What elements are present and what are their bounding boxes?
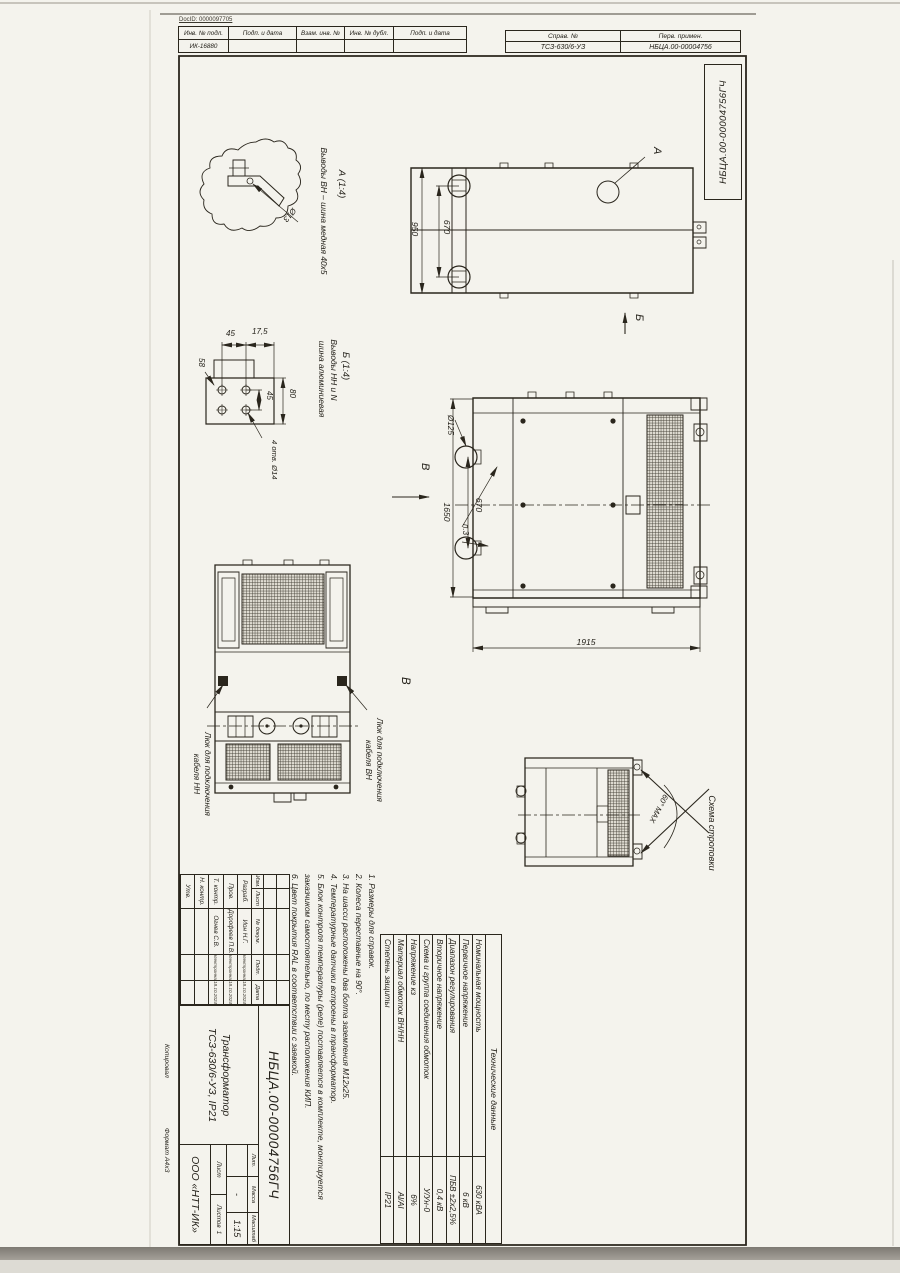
docid-text: DocID: 0000097705: [179, 17, 232, 23]
chg-col-list: Лист: [251, 889, 263, 909]
product-name-line2: ТСЗ-630/6-УЗ, IP21: [205, 1028, 219, 1122]
front-view-dim-1650: 1650: [442, 494, 452, 530]
sig-date: [180, 981, 194, 1005]
product-name: Трансформатор ТСЗ-630/6-УЗ, IP21: [180, 1006, 258, 1145]
tech-row-label: Схема и группа соединения обмоток: [420, 935, 432, 1157]
tech-row-label: Диапазон регулирования: [447, 935, 459, 1157]
chg-col-izm: Изм.: [251, 875, 263, 889]
title-block-signatures: Изм. Лист № докум. Подп. Дата Разраб. Ио…: [180, 875, 289, 1006]
detail-a-title: А (1:4): [336, 160, 347, 208]
sig-role: Разраб.: [237, 875, 251, 909]
tech-row-value: У/Ун-0: [420, 1157, 432, 1243]
technical-data-table: Технические данные Номинальная мощность6…: [380, 934, 502, 1244]
tech-row-label: Первичное напряжение: [460, 935, 472, 1157]
tech-row-value: 6%: [407, 1157, 419, 1243]
mass-value: -: [226, 1177, 247, 1213]
chg-col-data: Дата: [251, 981, 263, 1005]
note-5-cont: заказчиком самостоятельно, по месту расп…: [301, 874, 314, 1166]
tech-row-value: Al/Al: [394, 1157, 406, 1243]
top-view-dim-950: 950: [410, 212, 420, 246]
product-name-line1: Трансформатор: [219, 1034, 233, 1117]
reference-stamp-table: Справ. № Перв. примен. ТСЗ-630/6-УЗ НБЦА…: [505, 30, 741, 53]
hatch-label-vn-line1: Люк для подключения: [374, 693, 385, 827]
sig-signature: Электронная: [223, 955, 237, 981]
sprav-value: ТСЗ-630/6-УЗ: [506, 42, 621, 52]
scale-label: Масштаб: [247, 1213, 258, 1244]
sheets-label: Листов: [215, 1205, 222, 1228]
copied-by-label: Копировал: [163, 1044, 170, 1078]
sig-role: Т. контр.: [208, 875, 222, 909]
hatch-label-nn-line2: кабеля НН: [191, 707, 202, 841]
sig-name: [194, 909, 208, 955]
top-view-dim-670: 670: [442, 214, 452, 240]
corner-designation-text: НБЦА.00-00004756ГЧ: [718, 80, 729, 184]
tech-row-value: IP21: [381, 1157, 393, 1243]
sig-date: 18.10.2024: [237, 981, 251, 1005]
bottom-view-title: В: [399, 677, 411, 685]
front-view-dim-670: 670: [474, 492, 484, 518]
sheets-value: 1: [215, 1231, 222, 1235]
chg-col-podp: Подп.: [251, 955, 263, 981]
sig-role: Пров.: [223, 875, 237, 909]
sling-view-linework: [516, 758, 709, 866]
sheet-label: Лист: [210, 1145, 226, 1195]
note-2: 2. Колеса переставные на 90°.: [352, 874, 365, 1166]
sig-role: Утв.: [180, 875, 194, 909]
hatch-label-vn: Люк для подключения кабеля ВН: [363, 693, 385, 827]
tech-row-label: Номинальная мощность: [473, 935, 485, 1157]
tech-row-value: ПБВ ±2х2,5%: [447, 1157, 459, 1243]
format-label: Формат А4х3: [163, 1128, 170, 1172]
sig-signature: Электронная: [208, 955, 222, 981]
hatch-label-nn: Люк для подключения кабеля НН: [191, 707, 213, 841]
mass-label: Масса: [247, 1177, 258, 1213]
hatch-label-nn-line1: Люк для подключения: [202, 707, 213, 841]
tech-table-title: Технические данные: [485, 935, 501, 1243]
front-view-dim-wheel-dia: Ø125: [446, 408, 455, 442]
note-3: 3. На шасси расположены два болта заземл…: [340, 874, 353, 1166]
sig-date: 18.10.2024: [223, 981, 237, 1005]
scale-value: 1:15: [226, 1213, 247, 1244]
front-view-arrow-label-v: В: [419, 463, 431, 470]
top-view-callout-a: А: [651, 147, 663, 154]
sig-date: [194, 981, 208, 1005]
sig-signature: Электронная: [237, 955, 251, 981]
inv-col-1: Инв. № подл.: [179, 27, 229, 39]
front-view-note-ref: п.3: [461, 524, 470, 535]
note-1: 1. Размеры для справок.: [365, 874, 378, 1166]
detail-b-caption-2: шина алюминиевая: [317, 334, 327, 424]
tech-row-label: Материал обмоток ВН/НН: [394, 935, 406, 1157]
tech-row-value: 6 кВ: [460, 1157, 472, 1243]
front-view-dim-1915: 1915: [563, 637, 609, 647]
scan-bottom-edge: [0, 1260, 900, 1273]
tech-row-value: 630 кВА: [473, 1157, 485, 1243]
detail-b-dim-58: 58: [197, 358, 206, 367]
perv-label: Перв. примен.: [621, 31, 740, 41]
detail-b-dim-45-top: 45: [226, 329, 235, 338]
scan-bottom-band: [0, 1247, 900, 1260]
detail-b-dim-17-5: 17,5: [252, 327, 268, 336]
detail-b-holes-note: 4 отв. Ø14: [270, 440, 279, 479]
sig-signature: [194, 955, 208, 981]
tech-row-label: Вторичное напряжение: [434, 935, 446, 1157]
inv-col-2: Подп. и дата: [229, 27, 297, 39]
hatch-label-vn-line2: кабеля ВН: [363, 693, 374, 827]
bottom-view-linework: [207, 560, 367, 802]
drawing-sheet: DocID: 0000097705 Инв. № подл. Подп. и д…: [0, 0, 900, 1273]
inventory-header-row: Инв. № подл. Подп. и дата Взам. инв. № И…: [179, 27, 466, 39]
detail-a-caption: Выводы ВН – шина медная 40х5: [319, 108, 329, 314]
perv-value: НБЦА.00-00004756: [621, 42, 740, 52]
inv-col-5: Подп. и дата: [394, 27, 466, 39]
sig-name: Ион Н.Г.: [237, 909, 251, 955]
detail-b-caption-1: Выводы НН и N: [329, 334, 339, 406]
tech-row-value: 0,4 кВ: [434, 1157, 446, 1243]
front-view-linework: [392, 392, 712, 652]
tech-row-label: Напряжение кз: [407, 935, 419, 1157]
chg-col-dokum: № докум.: [251, 909, 263, 955]
detail-b-dim-80: 80: [288, 389, 297, 398]
organization-name: ООО «НТТ-ИК»: [180, 1145, 210, 1244]
inv-number: ИК-16880: [179, 40, 229, 52]
detail-b-dim-45-right: 45: [265, 391, 274, 400]
tech-row-label: Степень защиты: [381, 935, 393, 1157]
note-6: 6. Цвет покрытия RAL в соответствии с за…: [288, 874, 301, 1166]
sling-view-title: Схема строповки: [707, 785, 717, 881]
sig-name: Огнев С.В.: [208, 909, 222, 955]
sig-role: Н. контр.: [194, 875, 208, 909]
lit-label: Лит.: [247, 1145, 258, 1177]
top-view-linework: [411, 157, 706, 334]
detail-b-linework: [205, 342, 286, 438]
inventory-stamp-table: Инв. № подл. Подп. и дата Взам. инв. № И…: [178, 26, 467, 53]
technical-notes: 1. Размеры для справок. 2. Колеса перест…: [286, 874, 378, 1166]
sig-name: [180, 909, 194, 955]
corner-designation-stamp: НБЦА.00-00004756ГЧ: [704, 64, 742, 200]
top-view-arrow-label-b: Б: [633, 314, 645, 321]
sig-signature: [180, 955, 194, 981]
inv-col-3: Взам. инв. №: [297, 27, 345, 39]
title-block-designation: НБЦА.00-00004756ГЧ: [258, 1006, 289, 1244]
inventory-value-row: ИК-16880: [179, 39, 466, 52]
note-5: 5. Блок контроля температуры (реле) пост…: [314, 874, 327, 1166]
title-block: Изм. Лист № докум. Подп. Дата Разраб. Ио…: [179, 874, 290, 1245]
note-4: 4. Температурные датчики встроены в тран…: [327, 874, 340, 1166]
detail-b-title: Б (1:4): [340, 340, 351, 392]
inv-col-4: Инв. № дубл.: [345, 27, 394, 39]
sig-name: Дорофеев П.В.: [223, 909, 237, 955]
sprav-label: Справ. №: [506, 31, 621, 41]
sig-date: 18.10.2024: [208, 981, 222, 1005]
